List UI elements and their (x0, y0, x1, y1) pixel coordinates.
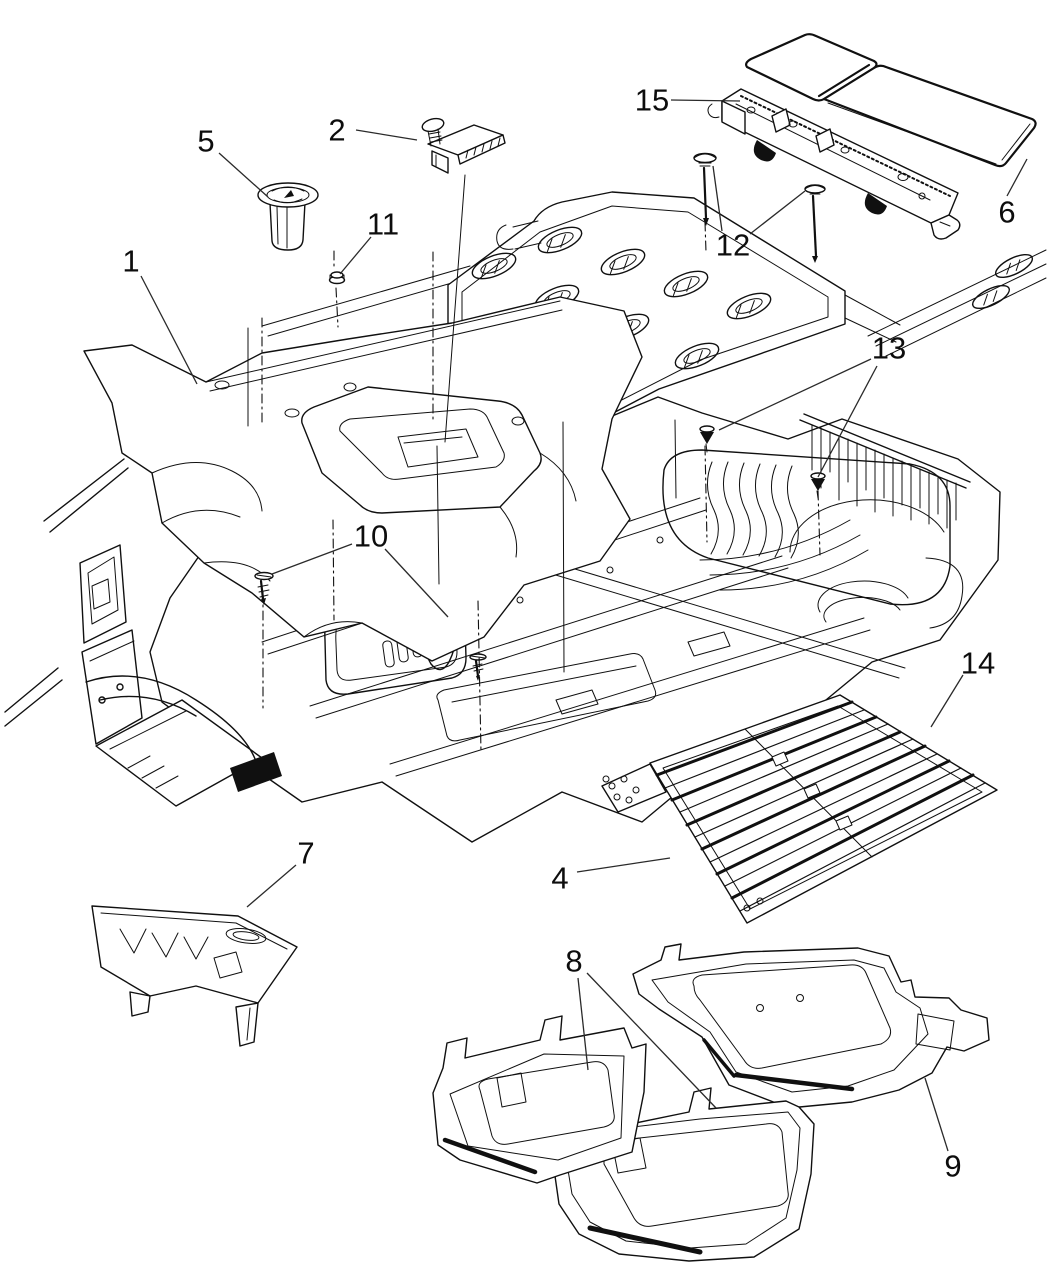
callout-11-leader (340, 237, 371, 274)
callout-8-label: 8 (565, 944, 582, 979)
callout-9-leader (925, 1078, 948, 1151)
callout-9-label: 9 (944, 1149, 961, 1184)
callout-15-label: 15 (635, 83, 669, 118)
callout-5-label: 5 (197, 124, 214, 159)
callout-11-label: 11 (367, 207, 399, 242)
callout-2-leader (356, 130, 417, 140)
plug-grommet-artwork (258, 183, 318, 250)
nut-fastener-artwork (330, 272, 345, 284)
callout-7-label: 7 (297, 836, 314, 871)
callout-7-leader (247, 865, 296, 907)
callout-14-label: 14 (961, 646, 995, 681)
callout-1-label: 1 (122, 244, 139, 279)
exploded-parts-diagram: 12456789101112131415 (0, 0, 1050, 1275)
callout-6-leader (1007, 159, 1027, 196)
callout-12-label: 12 (716, 228, 750, 263)
callout-6-label: 6 (998, 195, 1015, 230)
callout-2-label: 2 (328, 113, 345, 148)
parts-diagram-page: Black-and-white exploded parts line diag… (0, 0, 1050, 1275)
callout-14-leader (931, 675, 963, 727)
callout-12-leader (750, 191, 805, 234)
callout-4-leader (577, 858, 670, 872)
callout-10-label: 10 (354, 519, 388, 554)
callout-13-label: 13 (872, 331, 906, 366)
callout-4-label: 4 (551, 861, 568, 896)
callout-5-leader (219, 153, 268, 197)
bin-carpet-tub-artwork (633, 944, 989, 1108)
cover-bracket-artwork (92, 906, 297, 1046)
